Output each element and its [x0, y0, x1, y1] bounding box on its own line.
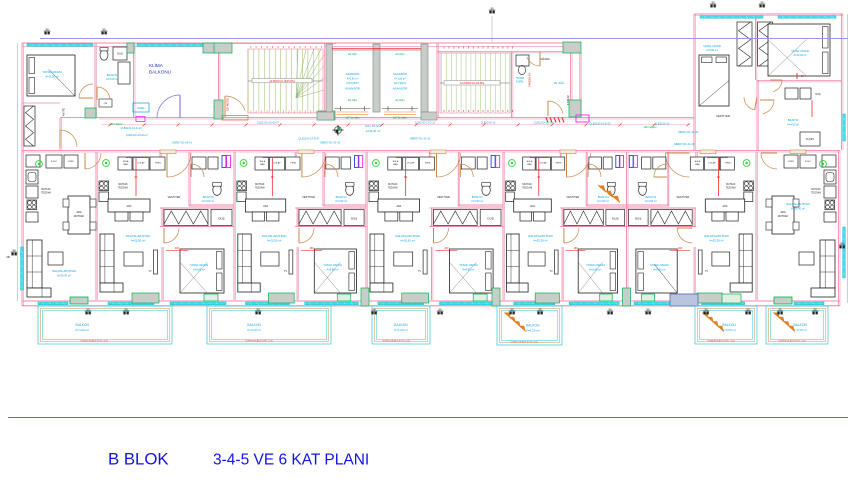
svg-text:BALKON: BALKON: [793, 323, 807, 327]
svg-text:YATAK ODASI: YATAK ODASI: [42, 70, 62, 74]
svg-text:ÇLB13-D-13-D-13: ÇLB13-D-13-D-13: [590, 122, 611, 126]
svg-text:DUŞ: DUŞ: [635, 217, 641, 221]
svg-text:DOLAP: DOLAP: [273, 162, 281, 165]
svg-text:A=11,50 m²: A=11,50 m²: [45, 74, 58, 78]
svg-text:99: 99: [102, 28, 106, 32]
svg-text:A=9,80 m²: A=9,80 m²: [326, 267, 338, 271]
svg-text:99: 99: [490, 7, 494, 11]
svg-text:SALON+MUTFAK: SALON+MUTFAK: [528, 234, 554, 238]
svg-text:A=9,80 m²: A=9,80 m²: [653, 267, 665, 271]
svg-text:YATAK ODASI: YATAK ODASI: [703, 44, 721, 48]
svg-text:A=12,00 m²: A=12,00 m²: [794, 54, 807, 57]
svg-text:A=9,50 m²: A=9,50 m²: [706, 49, 718, 52]
svg-text:99: 99: [256, 308, 260, 312]
svg-text:SALON+MUTFAK: SALON+MUTFAK: [395, 234, 421, 238]
svg-text:YATAK ODASI: YATAK ODASI: [190, 263, 209, 267]
svg-text:ANTRE: ANTRE: [63, 107, 66, 116]
svg-text:FIRIN: FIRIN: [788, 161, 794, 163]
svg-text:SALON+MUTFAK: SALON+MUTFAK: [52, 269, 76, 273]
svg-text:YANGIN M.: YANGIN M.: [528, 73, 532, 88]
svg-text:TEZGAHI: TEZGAHI: [726, 186, 736, 189]
svg-text:TEZGAHI: TEZGAHI: [388, 186, 398, 189]
svg-text:GBR27-D1-41-41: GBR27-D1-41-41: [410, 137, 431, 141]
svg-text:DOLAP: DOLAP: [407, 162, 415, 165]
svg-text:DOLAP: DOLAP: [708, 162, 716, 165]
svg-text:ADA: ADA: [76, 210, 82, 214]
svg-text:DUŞ: DUŞ: [487, 217, 493, 221]
svg-text:SALON+MUTFAK: SALON+MUTFAK: [704, 234, 730, 238]
svg-text:3-4-5 VE 6 KAT PLANI: 3-4-5 VE 6 KAT PLANI: [213, 452, 369, 469]
svg-text:TV: TV: [284, 270, 287, 273]
svg-text:TV: TV: [148, 270, 151, 273]
svg-text:KORKULUK ALTI KOTU +0,50: KORKULUK ALTI KOTU +0,50: [511, 341, 539, 344]
svg-text:ÇLB13-D+13: ÇLB13-D+13: [481, 121, 496, 124]
svg-text:DUŞ: DUŞ: [815, 93, 820, 96]
svg-text:abj brğm: abj brğm: [348, 53, 357, 56]
svg-text:160: 160: [678, 246, 683, 250]
svg-text:VESTİYER: VESTİYER: [716, 113, 730, 118]
svg-text:160: 160: [309, 246, 314, 250]
svg-text:MAK.: MAK.: [260, 163, 266, 166]
svg-text:(KKY)(B,K): (KKY)(B,K): [394, 82, 407, 85]
svg-text:A=9,80 m²: A=9,80 m²: [462, 267, 474, 271]
svg-text:BULA.: BULA.: [393, 160, 399, 163]
svg-text:YATAK ODASI: YATAK ODASI: [459, 263, 478, 267]
svg-text:KORKULUK ALTI KOTU +0,50: KORKULUK ALTI KOTU +0,50: [707, 340, 735, 343]
svg-text:YATAK ODASI: YATAK ODASI: [323, 263, 342, 267]
svg-text:sRb bağlant: sRb bağlant: [110, 123, 123, 126]
svg-text:99: 99: [704, 308, 708, 312]
svg-text:MUTFAK: MUTFAK: [118, 183, 128, 186]
svg-text:FIRIN: FIRIN: [425, 163, 431, 165]
svg-text:BANYO: BANYO: [107, 73, 118, 77]
svg-text:A=4,50 m²: A=4,50 m²: [722, 328, 736, 332]
svg-text:GBR27-D1-41-41: GBR27-D1-41-41: [320, 141, 341, 145]
svg-text:MAK.: MAK.: [695, 163, 701, 166]
svg-text:GBR27-D1-41-41: GBR27-D1-41-41: [674, 142, 695, 146]
svg-text:99: 99: [778, 308, 782, 312]
svg-text:99: 99: [746, 308, 750, 312]
svg-text:kğT fİa mğlm: kğT fİa mğlm: [346, 117, 360, 120]
svg-text:A=1,80 m²: A=1,80 m²: [394, 78, 406, 81]
svg-text:99: 99: [813, 308, 817, 312]
svg-text:KORKULUK ALTI KOTU +0,50: KORKULUK ALTI KOTU +0,50: [81, 340, 109, 343]
svg-text:FIRIN: FIRIN: [291, 163, 297, 165]
svg-text:MUTFAK: MUTFAK: [811, 188, 821, 191]
svg-text:SIĞINAK: SIĞINAK: [540, 58, 550, 61]
svg-text:BULA.: BULA.: [527, 160, 533, 163]
svg-text:160: 160: [444, 246, 449, 250]
svg-text:3B: 3B: [6, 255, 9, 259]
svg-text:B.DLP: B.DLP: [805, 161, 812, 163]
svg-text:TEZGAHI: TEZGAHI: [522, 186, 532, 189]
svg-text:BULA.: BULA.: [123, 160, 129, 163]
svg-text:KÜVET: KÜVET: [806, 138, 815, 141]
svg-text:99: 99: [45, 28, 49, 32]
svg-text:DUŞ: DUŞ: [351, 217, 357, 221]
svg-text:YATAK ODASI: YATAK ODASI: [650, 263, 669, 267]
svg-text:A=25,50 m²: A=25,50 m²: [709, 239, 724, 243]
svg-text:A=4,50 m²: A=4,50 m²: [645, 199, 657, 203]
svg-text:MUTFAK: MUTFAK: [388, 183, 398, 186]
svg-text:ADA: ADA: [396, 205, 401, 208]
svg-text:GBR27-D1-41-41: GBR27-D1-41-41: [678, 130, 699, 134]
svg-text:99: 99: [711, 1, 715, 5]
svg-text:A=25,50 m²: A=25,50 m²: [131, 239, 146, 243]
svg-text:kğT fİa mğlm: kğT fİa mğlm: [393, 117, 407, 120]
svg-text:99: 99: [646, 308, 650, 312]
svg-text:TV: TV: [550, 270, 553, 273]
svg-text:A=25,50 m²: A=25,50 m²: [533, 239, 548, 243]
svg-text:BALKON: BALKON: [394, 323, 408, 327]
svg-text:A4 200600 010 RA.Rbq: A4 200600 010 RA.Rbq: [460, 82, 485, 85]
svg-text:ÇLB13-D+13+D+17: ÇLB13-D+13+D+17: [257, 121, 280, 124]
svg-text:ÇM: ÇM: [104, 103, 108, 105]
svg-text:A=29,30 m²: A=29,30 m²: [57, 274, 71, 278]
svg-text:abj brğm: abj brğm: [348, 99, 357, 102]
svg-text:SALON+MUTFAK: SALON+MUTFAK: [262, 234, 288, 238]
svg-text:MAK.: MAK.: [393, 163, 399, 166]
svg-text:SALON+MUTFAK: SALON+MUTFAK: [126, 234, 152, 238]
svg-text:ASANSÖR: ASANSÖR: [393, 72, 407, 76]
svg-text:ADA: ADA: [127, 205, 132, 208]
svg-text:BALKON: BALKON: [526, 324, 540, 328]
svg-text:MUTFAK: MUTFAK: [726, 183, 736, 186]
svg-text:MUTFAK: MUTFAK: [523, 183, 533, 186]
svg-text:ASANSÖR: ASANSÖR: [345, 87, 361, 91]
svg-text:TEZGAHI: TEZGAHI: [255, 186, 265, 189]
svg-text:A=34,30 m²: A=34,30 m²: [366, 129, 381, 133]
svg-text:ÇLB13-D-13-D-13: ÇLB13-D-13-D-13: [415, 121, 436, 124]
svg-text:ADA: ADA: [530, 205, 535, 208]
svg-text:KORKULUK ALTI KOTU +0,50: KORKULUK ALTI KOTU +0,50: [778, 340, 806, 343]
svg-text:MAK.: MAK.: [527, 163, 533, 166]
svg-text:ADA: ADA: [723, 205, 728, 208]
svg-text:abj brğm: abj brğm: [395, 99, 404, 102]
svg-text:BALKONU: BALKONU: [149, 70, 171, 75]
svg-text:A=9,80 m²: A=9,80 m²: [193, 267, 205, 271]
svg-text:ÇLB13-D+13+D+17: ÇLB13-D+13+D+17: [126, 134, 149, 137]
svg-text:A=4,50 m²: A=4,50 m²: [202, 199, 214, 203]
svg-text:DOLAP: DOLAP: [540, 162, 548, 165]
svg-text:sRb bağlant: sRb bağlant: [644, 126, 657, 129]
svg-text:99: 99: [438, 308, 442, 312]
svg-text:MUTFAK: MUTFAK: [778, 214, 789, 218]
svg-text:FIRIN: FIRIN: [556, 163, 562, 165]
svg-text:KLİMA: KLİMA: [149, 62, 164, 68]
svg-text:DOLAP: DOLAP: [137, 162, 145, 165]
svg-text:A=4,90 m²: A=4,90 m²: [106, 77, 118, 81]
svg-text:A=4,50 m²: A=4,50 m²: [471, 199, 483, 203]
svg-text:B BLOK: B BLOK: [108, 450, 169, 469]
svg-text:99: 99: [12, 249, 16, 253]
svg-text:99: 99: [760, 1, 764, 5]
svg-text:99: 99: [86, 308, 90, 312]
svg-text:A=4,50 m²: A=4,50 m²: [787, 123, 799, 127]
svg-text:MUTFAK: MUTFAK: [74, 214, 85, 218]
svg-text:ADA: ADA: [780, 210, 786, 214]
svg-text:A=4,20 m²: A=4,20 m²: [394, 328, 408, 332]
svg-text:99: 99: [372, 308, 376, 312]
svg-text:A=25,50 m²: A=25,50 m²: [400, 239, 415, 243]
svg-text:TV: TV: [705, 270, 708, 273]
svg-text:YATAK ODASI: YATAK ODASI: [586, 263, 605, 267]
svg-text:DUŞ: DUŞ: [612, 217, 618, 221]
svg-text:SALON+MUTFAK: SALON+MUTFAK: [786, 202, 810, 206]
svg-text:BALKON: BALKON: [76, 323, 90, 327]
svg-text:MUTFAK: MUTFAK: [255, 183, 265, 186]
svg-text:A=25,50 m²: A=25,50 m²: [267, 239, 282, 243]
svg-text:A=4,50 m²: A=4,50 m²: [335, 199, 347, 203]
svg-text:MAK.: MAK.: [123, 163, 129, 166]
svg-text:KLİMA: KLİMA: [137, 107, 145, 110]
svg-text:160: 160: [573, 246, 578, 250]
svg-text:DUŞ: DUŞ: [117, 52, 123, 56]
svg-text:BANYO: BANYO: [645, 195, 656, 199]
svg-text:BALKON: BALKON: [247, 323, 261, 327]
svg-text:A=4,20 m²: A=4,20 m²: [247, 328, 261, 332]
svg-text:DUŞ: DUŞ: [218, 217, 224, 221]
svg-text:BANYO: BANYO: [472, 195, 483, 199]
svg-text:(KKY)(B,K): (KKY)(B,K): [346, 82, 359, 85]
svg-text:FIRIN: FIRIN: [155, 163, 161, 165]
svg-text:99: 99: [840, 242, 844, 246]
svg-text:BULA.: BULA.: [260, 160, 266, 163]
svg-text:BANYO: BANYO: [203, 195, 214, 199]
svg-text:TV: TV: [418, 270, 421, 273]
svg-text:MUTFAK: MUTFAK: [41, 188, 51, 191]
svg-text:A=9,80 m²: A=9,80 m²: [589, 267, 601, 271]
svg-text:TEZGAHI: TEZGAHI: [118, 186, 128, 189]
svg-text:BULA.: BULA.: [695, 160, 701, 163]
svg-text:BALKON: BALKON: [722, 323, 736, 327]
svg-text:A=4,50 m²: A=4,50 m²: [597, 199, 609, 203]
svg-text:BANYO: BANYO: [788, 118, 799, 122]
svg-text:KORD.: KORD.: [516, 81, 524, 84]
svg-text:99: 99: [608, 308, 612, 312]
svg-text:ASANSÖR: ASANSÖR: [393, 87, 409, 91]
svg-text:TEZGAHI: TEZGAHI: [41, 191, 51, 194]
svg-text:YATAK ODASI: YATAK ODASI: [791, 49, 809, 53]
svg-text:KORKULUK ALTI KOTU +0,50: KORKULUK ALTI KOTU +0,50: [245, 340, 273, 343]
svg-text:ASANSÖR: ASANSÖR: [346, 72, 360, 76]
svg-text:A=4,20 m²: A=4,20 m²: [75, 328, 89, 332]
svg-text:TUVAR: TUVAR: [516, 77, 524, 80]
svg-text:ÇLB13-D+13+D+17: ÇLB13-D+13+D+17: [534, 121, 557, 124]
svg-text:A=1,80 m²: A=1,80 m²: [347, 78, 359, 81]
svg-text:A=4,20 m²: A=4,20 m²: [526, 329, 540, 333]
svg-text:ÇLB13-D-13-D-47: ÇLB13-D-13-D-47: [299, 137, 320, 141]
svg-text:99: 99: [510, 308, 514, 312]
svg-text:ÇLB13-D+13: ÇLB13-D+13: [655, 123, 670, 126]
svg-text:99: 99: [124, 308, 128, 312]
svg-text:B.DLP: B.DLP: [51, 161, 58, 163]
svg-text:99: 99: [538, 308, 542, 312]
svg-text:FIRIN: FIRIN: [725, 163, 731, 165]
svg-text:FIRIN: FIRIN: [68, 161, 74, 163]
svg-text:ADA: ADA: [263, 205, 268, 208]
svg-text:GBR27-D1-41-41: GBR27-D1-41-41: [172, 142, 192, 145]
svg-text:KORKULUK ALTI KOTU +0,50: KORKULUK ALTI KOTU +0,50: [383, 340, 411, 343]
svg-text:abj brğm: abj brğm: [396, 53, 405, 56]
svg-text:A=4,50 m²: A=4,50 m²: [793, 328, 807, 332]
svg-text:TEZGAHI: TEZGAHI: [811, 191, 821, 194]
svg-text:10 RODO DI 16/25 Rbq: 10 RODO DI 16/25 Rbq: [269, 80, 295, 83]
svg-text:160: 160: [175, 246, 180, 250]
svg-text:ÇB MERD.: ÇB MERD.: [226, 97, 230, 111]
svg-text:A=29,30 m²: A=29,30 m²: [791, 207, 805, 211]
svg-text:ÇLB13-D-13-D-13: ÇLB13-D-13-D-13: [121, 126, 142, 130]
svg-text:BANYO: BANYO: [598, 195, 609, 199]
svg-text:BANYO: BANYO: [336, 195, 347, 199]
